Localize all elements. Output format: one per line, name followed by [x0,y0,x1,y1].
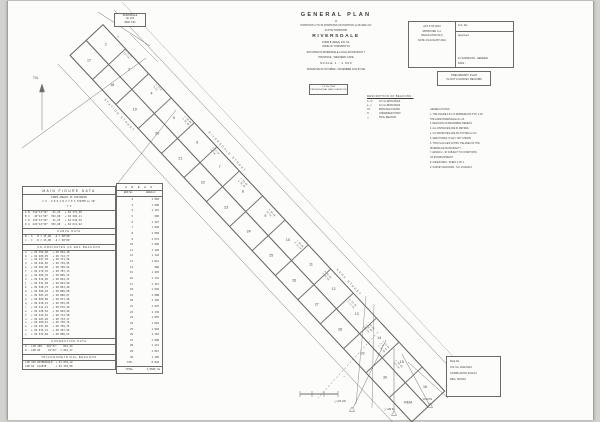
main-table-hdr3: Y X [23,205,115,209]
for-surveyor-general: for SURVEYOR - GENERAL [458,57,488,60]
lot-number: 26 [292,278,296,282]
lot-number: 18 [110,83,114,87]
text-line: DRG. RV/64/1 [447,376,500,382]
lot-number: 20 [155,132,159,136]
approval-act-cell: ACT 9 OF 2010APPROVED i.t.o.REGULATION 5… [409,22,456,67]
areas-col-area: AREA m² [140,192,163,195]
lot-number: 25 [269,254,273,258]
areas-erf: STR. [117,360,136,366]
lot-number: REM [404,400,412,404]
sg-number-label: S.G. No. [456,22,513,32]
lot-number: 30 [383,376,387,380]
table-section-header: CO-ORDINATES OF ERF BEACONS [23,244,115,251]
approval-date-label: DATE : [458,62,466,65]
areas-total-value: 3,9596 ha [135,367,162,373]
trig-beacon-label: △ L2B 64 [384,408,395,411]
lot-number: 11 [309,263,313,267]
table-row: D A 222°14'50" 352,68 + 62 611,92 [23,223,115,227]
notes-block: GENERAL NOTES :1. THE FIGURE A B C D REP… [430,108,488,171]
title-surveyed: SURVEYED IN OCTOBER - NOVEMBER 2011 BY M… [268,68,404,71]
surveyor-signature-box: L.S. No. 8106PROFESSIONAL LAND SURVEYOR [309,84,348,95]
lot-number: 8 [242,189,244,193]
areas-total-row: TOTAL 3,9596 ha [117,366,162,373]
title-portions: PORTIONS 2 TO 30 (PORTIONS OF PORTION 1)… [268,24,404,27]
title-scale: SCALE 1 : 1 000 [268,61,404,65]
main-table-header: SIDES ANGLES OF DISTANCES C O - O R D I … [23,195,115,211]
trig-beacon-label: △ L1B 100 [334,400,346,403]
lot-number: 12 [332,287,336,291]
lot-number: 29 [361,352,365,356]
title-in-township: IN THE TOWNSHIP [268,29,404,32]
text-line: PROFESSIONAL LAND SURVEYOR [310,89,347,92]
approval-sg-cell: S.G. No. Approved for SURVEYOR - GENERAL… [456,22,513,67]
table-row: L2B 64 VLAKTE + 63 310,08 [23,365,115,369]
preliminary-plan-box: PRELIMINARY PLANIS NOT A SURVEY RECORD [437,71,491,86]
file-reference-box: FILE No.S.R. No. 2011/0413COMPILATION 20… [446,356,501,397]
legend-desc: TRIG. BEACON [379,116,396,120]
text-line: REM. 1/64 [115,22,145,25]
areas-table: A R E A S ERF No. AREA m² 21 08331 09041… [116,183,163,374]
table-row: c - C R = 15,00 Δ = 90°00' [23,239,115,243]
table-row: D - L2B 64 41°52' 1 043,17 [23,349,115,353]
approval-box: ACT 9 OF 2010APPROVED i.t.o.REGULATION 5… [408,21,514,68]
lot-number: 16 [423,385,427,389]
areas-title: A R E A S [117,184,162,191]
note-line: 1. THE FIGURE A B C D REPRESENTS PTN. 1 … [430,113,488,118]
lot-number: 14 [377,336,381,340]
true-north-label: T.N. [33,76,39,80]
lot-number: 19 [133,107,137,111]
beacon-legend-title: DESCRIPTION OF BEACONS : [367,95,427,98]
lot-number: 17 [87,58,91,62]
main-figure-table: MAIN FIGURE DATA SIDES ANGLES OF DISTANC… [22,186,116,370]
township-name: RIVERSDALE [268,34,404,39]
lot-number: 2 [105,43,107,47]
lot-number: 10 [286,238,290,242]
areas-rows: 21 08331 09041 115599661 22771 04081 058… [117,197,162,366]
areas-value: 8 044 [136,360,162,366]
beacon-legend-rows: A - D12 mm IRON PEGSa - y12 mm IRON PEGS… [367,100,427,120]
plan-title: GENERAL PLAN [268,12,404,18]
title-block: GENERAL PLAN of PORTIONS 2 TO 30 (PORTIO… [268,12,404,71]
lot-number: 7 [219,165,221,169]
lot-number: 23 [224,205,228,209]
main-table-title: MAIN FIGURE DATA [23,187,115,195]
legend-code: △ [367,116,379,120]
scanned-plan-page: 2345678910111213141516 17181920212223242… [0,0,600,422]
areas-total-label: TOTAL [117,367,135,373]
title-situated: SITUATED IN RIVERSDALE LOCAL MUNICIPALIT… [268,51,404,54]
lot-number: 6 [196,140,198,144]
lot-number: 28 [338,327,342,331]
lot-number: 27 [315,303,319,307]
lot-number: 21 [178,156,182,160]
legend-row: △TRIG. BEACON [367,116,427,120]
approved-label: Approved [456,32,513,39]
lot-number: 3 [128,67,130,71]
lot-number: 4 [151,92,153,96]
areas-row: STR.8 044 [117,360,162,366]
note-line: 6. THIS PLAN LIES WITHIN THE AREA OF THE [430,142,488,147]
lot-number: 13 [355,312,359,316]
title-of: of [268,20,404,23]
note-line: 9. SURVEY RECORDS : S.R. 2011/0413. [430,166,488,171]
reference-box: RIVERSDALENo. 100REM. 1/64 [114,13,146,27]
title-sub2: ZONE OF TOWNSHIP 64 [268,45,404,49]
lot-number: 5 [173,116,175,120]
beacon-legend: DESCRIPTION OF BEACONS : A - D12 mm IRON… [367,95,427,120]
lot-number: 22 [201,181,205,185]
text-line: DATE: 19 AUGUST 2011 [411,39,453,44]
main-table-body: A B 312°14'50" 41,25 + 62 371,48B C 42°1… [23,211,115,369]
title-province: PROVINCE : WESTERN CAPE [268,56,404,59]
table-section-header: CURVE DATA [23,228,115,235]
areas-col-erf: ERF No. [117,192,140,195]
text-line: IS NOT A SURVEY RECORD [438,78,490,82]
table-row: y + 62 532,66 + 28 806,53 [23,333,115,337]
lot-number: 24 [247,229,251,233]
trig-beacon-label: △ VLAKTE [420,398,432,401]
